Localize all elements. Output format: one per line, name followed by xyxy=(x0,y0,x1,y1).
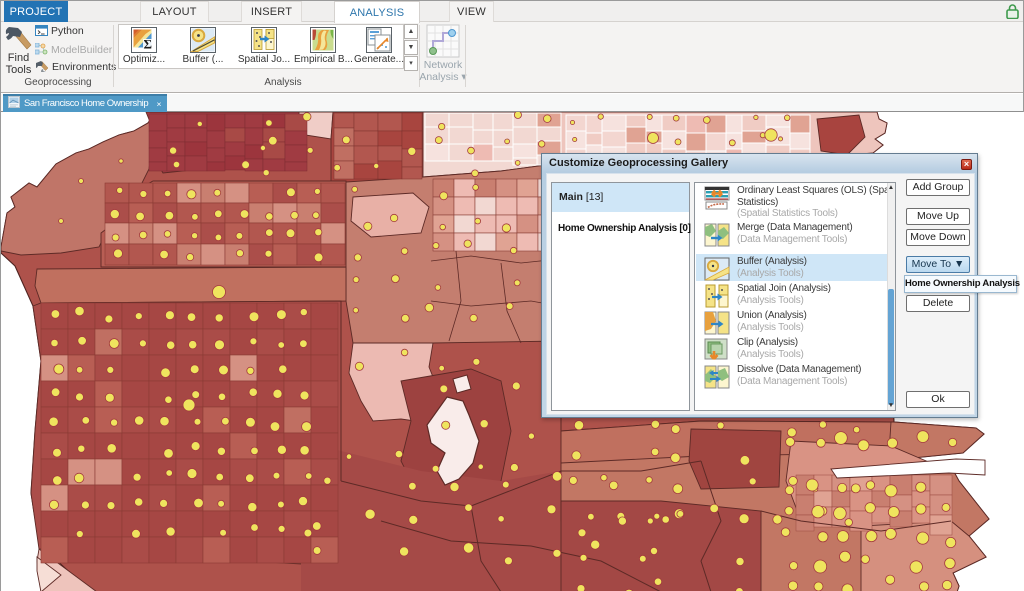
svg-text:Σ: Σ xyxy=(144,37,153,52)
